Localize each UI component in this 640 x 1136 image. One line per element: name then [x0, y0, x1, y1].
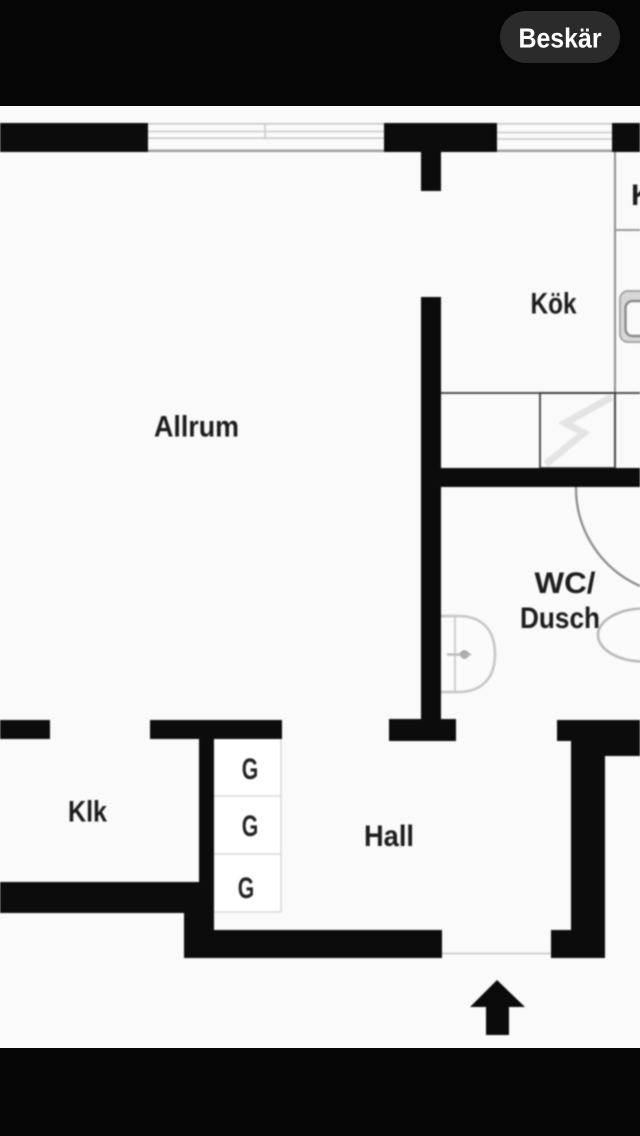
svg-text:Allrum: Allrum — [154, 411, 239, 444]
svg-text:Hall: Hall — [364, 820, 414, 853]
svg-text:Kök: Kök — [531, 288, 577, 321]
svg-text:Beskär: Beskär — [519, 23, 602, 54]
svg-text:WC/: WC/ — [535, 567, 597, 600]
svg-text:K: K — [631, 179, 640, 212]
svg-text:G: G — [242, 810, 259, 843]
svg-text:G: G — [242, 753, 259, 786]
svg-text:Klk: Klk — [68, 796, 107, 829]
svg-text:Dusch: Dusch — [520, 602, 600, 635]
svg-text:G: G — [238, 872, 255, 905]
